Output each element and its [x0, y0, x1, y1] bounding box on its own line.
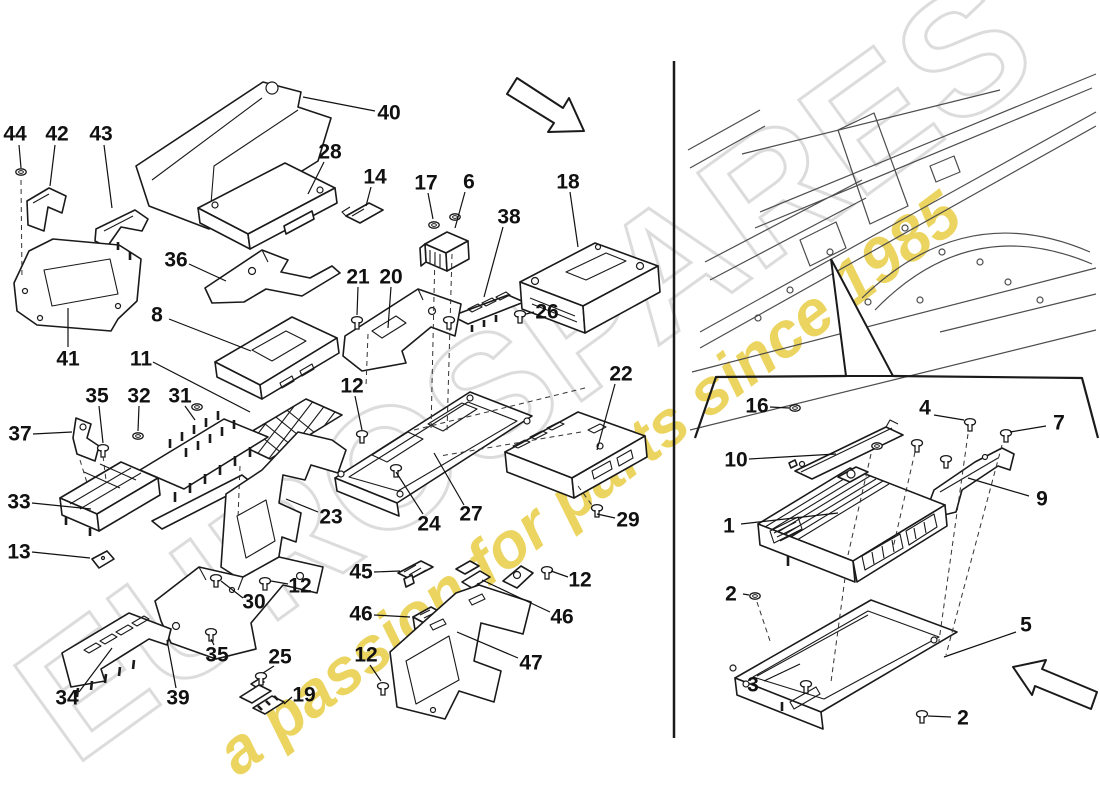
callout-leader-12: [551, 571, 568, 577]
chassis-bolt-holes: [755, 225, 1043, 321]
part-36-bracket: [205, 250, 340, 303]
callout-label-13: 13: [7, 541, 30, 564]
callout-label-17: 17: [414, 172, 437, 195]
callout-label-33: 33: [7, 491, 30, 514]
part-13-clip: [92, 551, 114, 568]
part-8-control-unit: [215, 317, 339, 399]
direction-arrow-bottom-icon: [1013, 660, 1097, 709]
callout-label-23: 23: [319, 506, 342, 529]
part-14-card: [342, 203, 383, 223]
callout-label-19: 19: [292, 684, 315, 707]
callout-leader-35: [99, 406, 103, 443]
diagram-canvas: 4442434028141761838362120268114135323112…: [0, 0, 1100, 800]
callout-label-22: 22: [609, 363, 632, 386]
part-33-fuse-box: [60, 462, 160, 536]
callout-leader-21: [357, 287, 358, 315]
callout-leader-12: [355, 396, 362, 430]
callout-label-37: 37: [8, 423, 31, 446]
callout-label-12: 12: [568, 569, 591, 592]
callout-label-21: 21: [346, 266, 370, 289]
callout-label-11: 11: [130, 348, 153, 371]
callout-label-12: 12: [288, 575, 311, 598]
callout-label-10: 10: [724, 449, 747, 472]
callout-leader-43: [104, 145, 112, 208]
callout-label-6: 6: [463, 171, 475, 194]
callout-leader-17: [428, 193, 433, 219]
callout-label-18: 18: [556, 171, 580, 194]
detail-pointer-wedge: [831, 259, 893, 376]
callout-label-34: 34: [55, 687, 79, 710]
callout-label-9: 9: [1036, 488, 1048, 511]
callout-label-1: 1: [723, 515, 735, 538]
part-20-bracket: [343, 289, 461, 371]
part-42-bracket: [27, 188, 66, 231]
callout-leader-42: [50, 145, 55, 186]
callout-label-42: 42: [45, 123, 68, 146]
part-41-mounting-plate: [14, 239, 141, 331]
callout-leader-39: [167, 640, 176, 688]
callout-label-35: 35: [205, 644, 229, 667]
part-22-control-unit: [505, 412, 647, 498]
part-37-arm: [73, 418, 99, 461]
callout-label-2: 2: [957, 707, 969, 730]
part-1-engine-control-unit: [758, 467, 947, 582]
callout-label-5: 5: [1020, 614, 1032, 637]
callout-leader-29: [597, 514, 615, 518]
callout-label-47: 47: [519, 652, 542, 675]
callout-label-31: 31: [168, 385, 192, 408]
callout-label-40: 40: [377, 102, 400, 125]
callout-label-8: 8: [151, 304, 163, 327]
callout-label-39: 39: [166, 687, 189, 710]
callout-leader-6: [455, 192, 465, 228]
direction-arrow-top-icon: [507, 78, 584, 132]
callout-label-14: 14: [363, 166, 387, 189]
callout-leader-2: [743, 594, 749, 595]
part-47-bracket: [390, 585, 531, 719]
callout-leader-8: [169, 319, 251, 351]
callout-label-36: 36: [164, 249, 187, 272]
callout-label-25: 25: [268, 646, 292, 669]
callout-label-46: 46: [349, 603, 372, 626]
callout-label-7: 7: [1053, 412, 1065, 435]
callout-leader-9: [968, 478, 1029, 496]
callout-label-29: 29: [616, 509, 639, 532]
callout-leader-12: [370, 665, 381, 681]
callout-label-12: 12: [340, 375, 363, 398]
part-43-clip: [95, 210, 148, 247]
callout-label-12: 12: [354, 644, 377, 667]
callout-label-26: 26: [535, 301, 558, 324]
part-45-clip: [398, 561, 433, 587]
callout-leader-44: [19, 145, 21, 168]
callout-leader-46: [374, 615, 410, 617]
callout-label-41: 41: [56, 348, 80, 371]
callout-label-38: 38: [497, 206, 521, 229]
callout-label-46: 46: [550, 606, 573, 629]
callout-leader-18: [570, 192, 578, 247]
callout-label-44: 44: [3, 123, 27, 146]
callout-label-16: 16: [745, 395, 768, 418]
callout-leader-13: [32, 552, 90, 558]
callout-leader-7: [1010, 426, 1046, 432]
callout-label-27: 27: [459, 503, 482, 526]
callout-label-35: 35: [85, 385, 109, 408]
callout-leader-37: [33, 432, 72, 434]
callout-leader-4: [934, 415, 964, 420]
callout-leader-2: [928, 716, 951, 717]
callout-label-45: 45: [349, 561, 373, 584]
callout-leader-16: [770, 407, 789, 408]
callout-label-4: 4: [919, 397, 931, 420]
callout-leader-45: [374, 571, 400, 572]
callout-leader-32: [138, 406, 139, 431]
right-panel-parts: [730, 420, 1014, 729]
callout-leader-19: [284, 697, 292, 704]
callout-label-43: 43: [89, 123, 112, 146]
callout-label-20: 20: [379, 266, 402, 289]
part-3-mounting-tray: [730, 600, 957, 729]
callout-label-24: 24: [417, 513, 441, 536]
callout-leader-36: [189, 264, 226, 281]
callout-label-30: 30: [242, 591, 265, 614]
callout-label-28: 28: [318, 141, 342, 164]
part-38-fuse-strip: [452, 292, 524, 332]
callout-label-3: 3: [747, 674, 759, 697]
part-27-frame: [335, 392, 532, 516]
callout-label-32: 32: [127, 385, 150, 408]
part-6-relay: [420, 232, 469, 271]
callout-leader-38: [484, 227, 503, 297]
part-34-connector-rail: [62, 613, 171, 697]
callout-label-2: 2: [725, 583, 737, 606]
callout-leader-5: [944, 632, 1016, 657]
parts-diagram-page: EUROSPARES a passion for parts since 198…: [0, 0, 1100, 800]
callout-leader-40: [303, 97, 375, 111]
